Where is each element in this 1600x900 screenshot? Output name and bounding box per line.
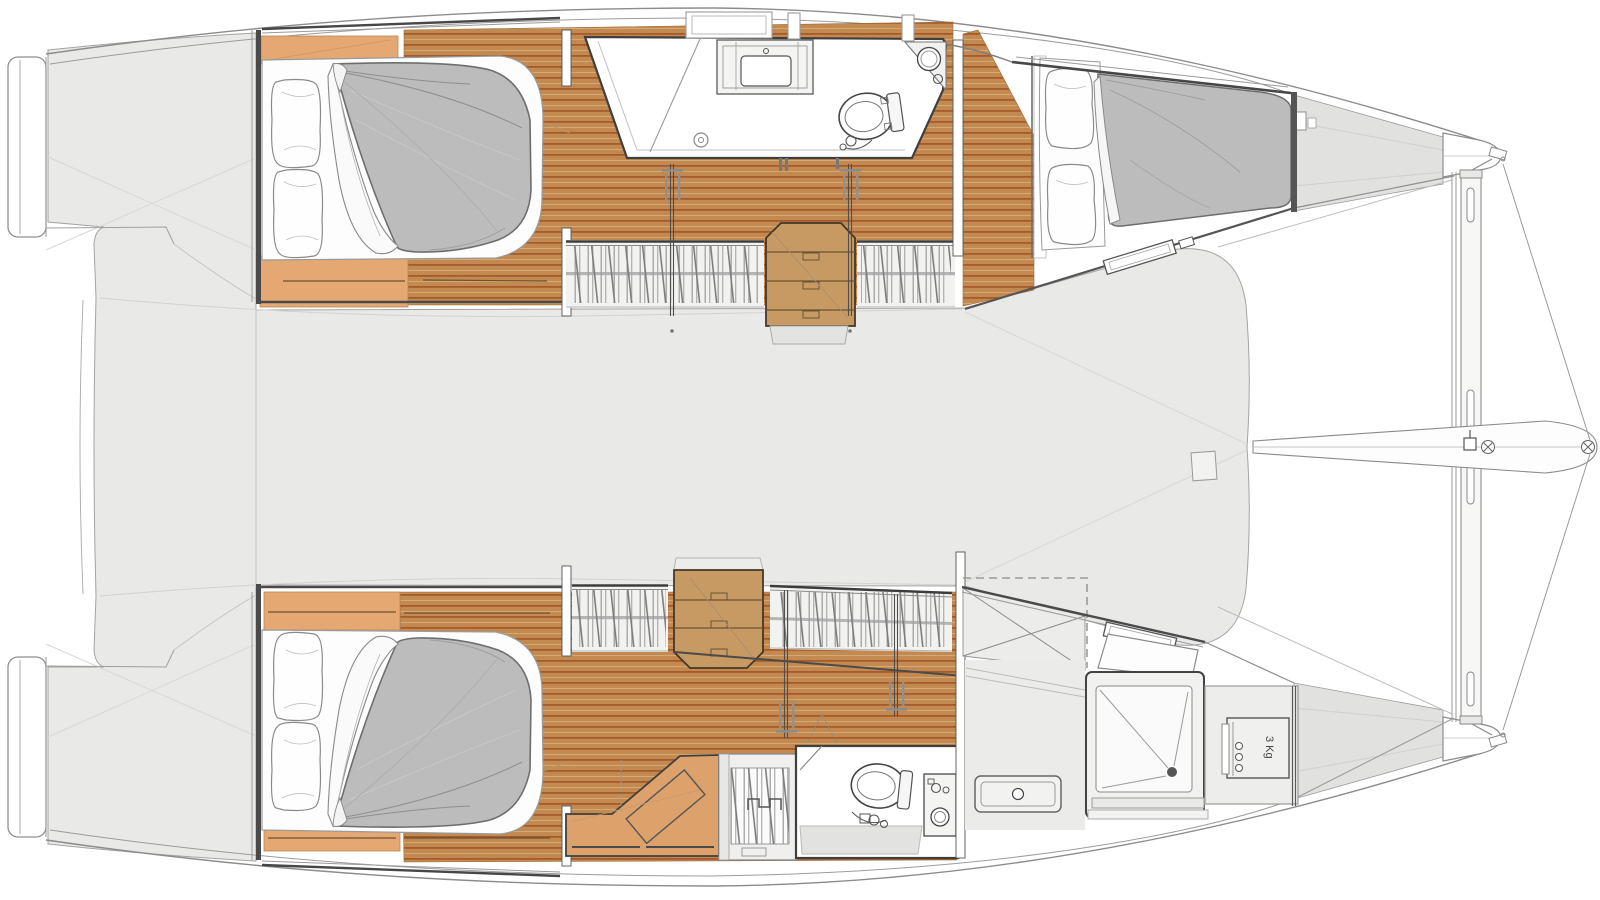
svg-text:3 Kg: 3 Kg [1263, 736, 1275, 759]
